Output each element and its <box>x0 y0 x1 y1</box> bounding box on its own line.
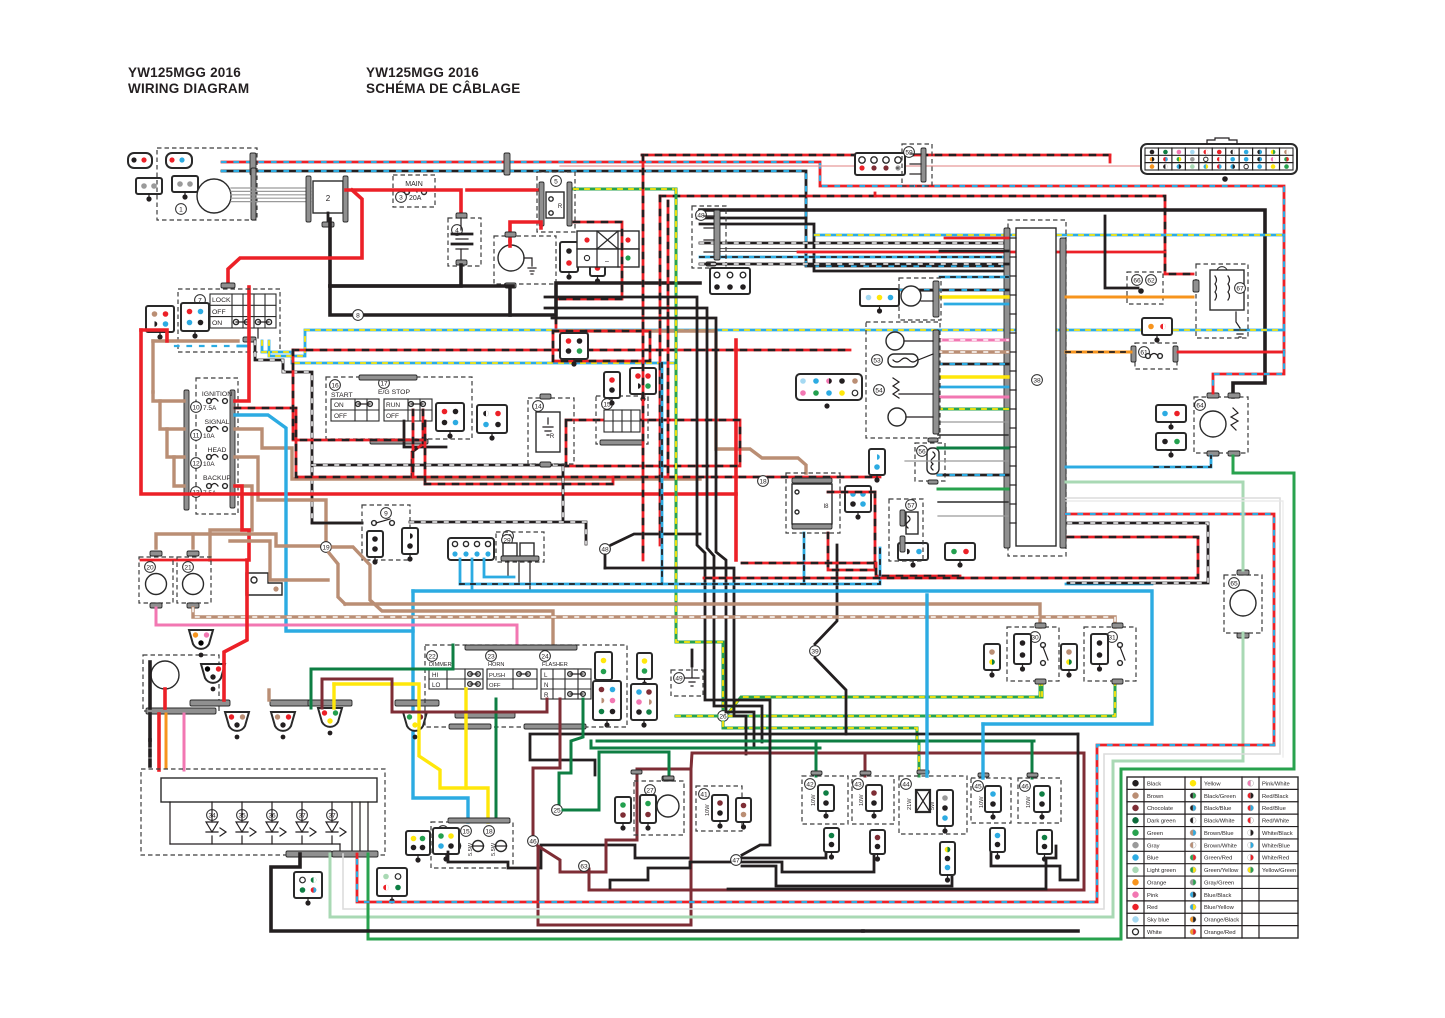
svg-text:31: 31 <box>1108 634 1116 641</box>
svg-text:Red: Red <box>1147 905 1158 911</box>
svg-text:23: 23 <box>487 653 495 660</box>
svg-text:FLASHER: FLASHER <box>542 662 568 668</box>
svg-text:White/Blue: White/Blue <box>1262 843 1290 849</box>
svg-text:I8: I8 <box>823 504 829 510</box>
svg-text:5: 5 <box>554 178 558 185</box>
svg-text:39: 39 <box>811 648 819 655</box>
svg-text:26: 26 <box>719 713 727 720</box>
svg-text:10: 10 <box>192 404 200 411</box>
svg-text:21W: 21W <box>907 798 913 810</box>
svg-text:43: 43 <box>854 781 862 788</box>
svg-text:10W: 10W <box>705 804 711 816</box>
svg-text:15: 15 <box>462 828 470 835</box>
svg-text:R: R <box>550 434 555 440</box>
svg-text:Blue/Black: Blue/Black <box>1204 893 1231 899</box>
svg-text:57: 57 <box>907 502 915 509</box>
svg-text:Blue: Blue <box>1147 856 1159 862</box>
svg-text:16: 16 <box>331 382 339 389</box>
svg-text:OFF: OFF <box>334 413 347 420</box>
svg-text:49: 49 <box>675 675 683 682</box>
svg-text:10A: 10A <box>203 461 215 468</box>
svg-text:Pink: Pink <box>1147 893 1158 899</box>
svg-text:44: 44 <box>902 781 910 788</box>
svg-text:Sky blue: Sky blue <box>1147 918 1169 924</box>
svg-text:Yellow/Green: Yellow/Green <box>1262 868 1296 874</box>
svg-text:N: N <box>544 682 548 689</box>
svg-text:10W: 10W <box>811 794 817 806</box>
svg-text:Black/Blue: Black/Blue <box>1204 806 1231 812</box>
svg-text:9: 9 <box>384 510 388 517</box>
svg-text:OFF: OFF <box>386 413 399 420</box>
svg-text:24: 24 <box>541 653 549 660</box>
svg-text:Brown/White: Brown/White <box>1204 843 1237 849</box>
svg-text:Pink/White: Pink/White <box>1262 781 1290 787</box>
svg-text:10W: 10W <box>1026 796 1032 808</box>
svg-text:BACKUP: BACKUP <box>203 475 231 482</box>
svg-text:=: = <box>896 166 899 172</box>
svg-text:2: 2 <box>326 194 331 203</box>
svg-text:HI: HI <box>432 672 438 679</box>
svg-text:Light green: Light green <box>1147 868 1176 874</box>
svg-text:Gray: Gray <box>1147 843 1160 849</box>
svg-text:Green: Green <box>1147 831 1163 837</box>
svg-text:MAIN: MAIN <box>405 181 423 188</box>
svg-text:18: 18 <box>485 828 493 835</box>
svg-text:Red/White: Red/White <box>1262 819 1289 825</box>
svg-text:–: – <box>605 258 609 265</box>
svg-text:63: 63 <box>580 863 588 870</box>
svg-text:LO: LO <box>432 682 440 689</box>
svg-text:21: 21 <box>184 564 192 571</box>
svg-text:Brown/Blue: Brown/Blue <box>1204 831 1234 837</box>
svg-text:67: 67 <box>1236 285 1244 292</box>
svg-text:10A: 10A <box>203 433 215 440</box>
svg-text:White: White <box>1147 930 1162 936</box>
svg-text:SCHÉMA DE CÂBLAGE: SCHÉMA DE CÂBLAGE <box>366 81 520 96</box>
svg-text:30: 30 <box>1031 634 1039 641</box>
svg-text:25: 25 <box>553 807 561 814</box>
svg-text:LOCK: LOCK <box>212 297 231 304</box>
svg-text:Black: Black <box>1147 781 1161 787</box>
svg-text:WIRING DIAGRAM: WIRING DIAGRAM <box>128 81 249 96</box>
svg-text:14: 14 <box>534 403 542 410</box>
svg-text:Chocolate: Chocolate <box>1147 806 1173 812</box>
svg-text:OFF: OFF <box>212 309 226 316</box>
svg-text:Orange/Black: Orange/Black <box>1204 918 1239 924</box>
svg-text:19: 19 <box>322 544 330 551</box>
svg-text:E/G STOP: E/G STOP <box>378 389 410 396</box>
svg-text:L: L <box>544 672 548 679</box>
svg-text:R: R <box>558 204 563 210</box>
svg-text:Blue/Yellow: Blue/Yellow <box>1204 905 1235 911</box>
svg-text:47: 47 <box>732 857 740 864</box>
svg-text:Yellow: Yellow <box>1204 781 1221 787</box>
svg-text:Orange/Red: Orange/Red <box>1204 930 1236 936</box>
svg-text:56: 56 <box>918 448 926 455</box>
svg-text:Dark green: Dark green <box>1147 819 1176 825</box>
svg-text:YW125MGG 2016: YW125MGG 2016 <box>128 65 241 80</box>
svg-text:46: 46 <box>1021 783 1029 790</box>
svg-text:46: 46 <box>529 838 537 845</box>
svg-text:54: 54 <box>875 387 883 394</box>
svg-text:59: 59 <box>905 149 913 156</box>
svg-text:YW125MGG 2016: YW125MGG 2016 <box>366 65 479 80</box>
svg-text:7.5A: 7.5A <box>203 405 217 412</box>
svg-text:20: 20 <box>146 564 154 571</box>
svg-text:HEAD: HEAD <box>208 447 227 454</box>
svg-text:12: 12 <box>192 460 200 467</box>
svg-text:66: 66 <box>1133 277 1141 284</box>
svg-text:17: 17 <box>380 380 388 387</box>
svg-text:53: 53 <box>873 357 881 364</box>
svg-text:OFF: OFF <box>489 683 501 689</box>
svg-text:RUN: RUN <box>386 402 400 409</box>
svg-text:HORN: HORN <box>488 662 504 668</box>
svg-text:IGNITION: IGNITION <box>202 391 232 398</box>
svg-text:Black/White: Black/White <box>1204 819 1235 825</box>
svg-text:ON: ON <box>334 402 344 409</box>
svg-text:11: 11 <box>193 432 200 439</box>
svg-text:64: 64 <box>1196 402 1204 409</box>
svg-text:Black/Green: Black/Green <box>1204 794 1236 800</box>
svg-text:START: START <box>331 392 353 399</box>
svg-text:Brown: Brown <box>1147 794 1163 800</box>
svg-text:62: 62 <box>1147 277 1155 284</box>
svg-text:3: 3 <box>399 194 403 201</box>
svg-text:38: 38 <box>1033 377 1041 384</box>
svg-text:1: 1 <box>179 206 183 213</box>
svg-text:SIGNAL: SIGNAL <box>205 419 230 426</box>
svg-text:8: 8 <box>356 312 360 319</box>
svg-text:20A: 20A <box>409 195 422 202</box>
svg-text:White/Red: White/Red <box>1262 856 1289 862</box>
svg-text:Gray/Green: Gray/Green <box>1204 880 1234 886</box>
svg-text:42: 42 <box>806 781 814 788</box>
svg-text:45: 45 <box>974 783 982 790</box>
svg-text:White/Black: White/Black <box>1262 831 1293 837</box>
svg-text:22: 22 <box>428 653 436 660</box>
svg-text:DIMMER: DIMMER <box>429 662 452 668</box>
svg-text:ON: ON <box>212 320 222 327</box>
svg-text:Red/Black: Red/Black <box>1262 794 1289 800</box>
svg-text:Green/Red: Green/Red <box>1204 856 1232 862</box>
svg-text:Green/Yellow: Green/Yellow <box>1204 868 1239 874</box>
svg-text:18: 18 <box>759 478 767 485</box>
svg-text:PUSH: PUSH <box>489 673 505 679</box>
svg-text:65: 65 <box>1230 580 1238 587</box>
svg-text:Orange: Orange <box>1147 880 1166 886</box>
svg-text:41: 41 <box>700 791 708 798</box>
svg-text:10W: 10W <box>859 794 865 806</box>
svg-text:27: 27 <box>646 787 654 794</box>
svg-text:Red/Blue: Red/Blue <box>1262 806 1286 812</box>
svg-text:48: 48 <box>601 546 609 553</box>
